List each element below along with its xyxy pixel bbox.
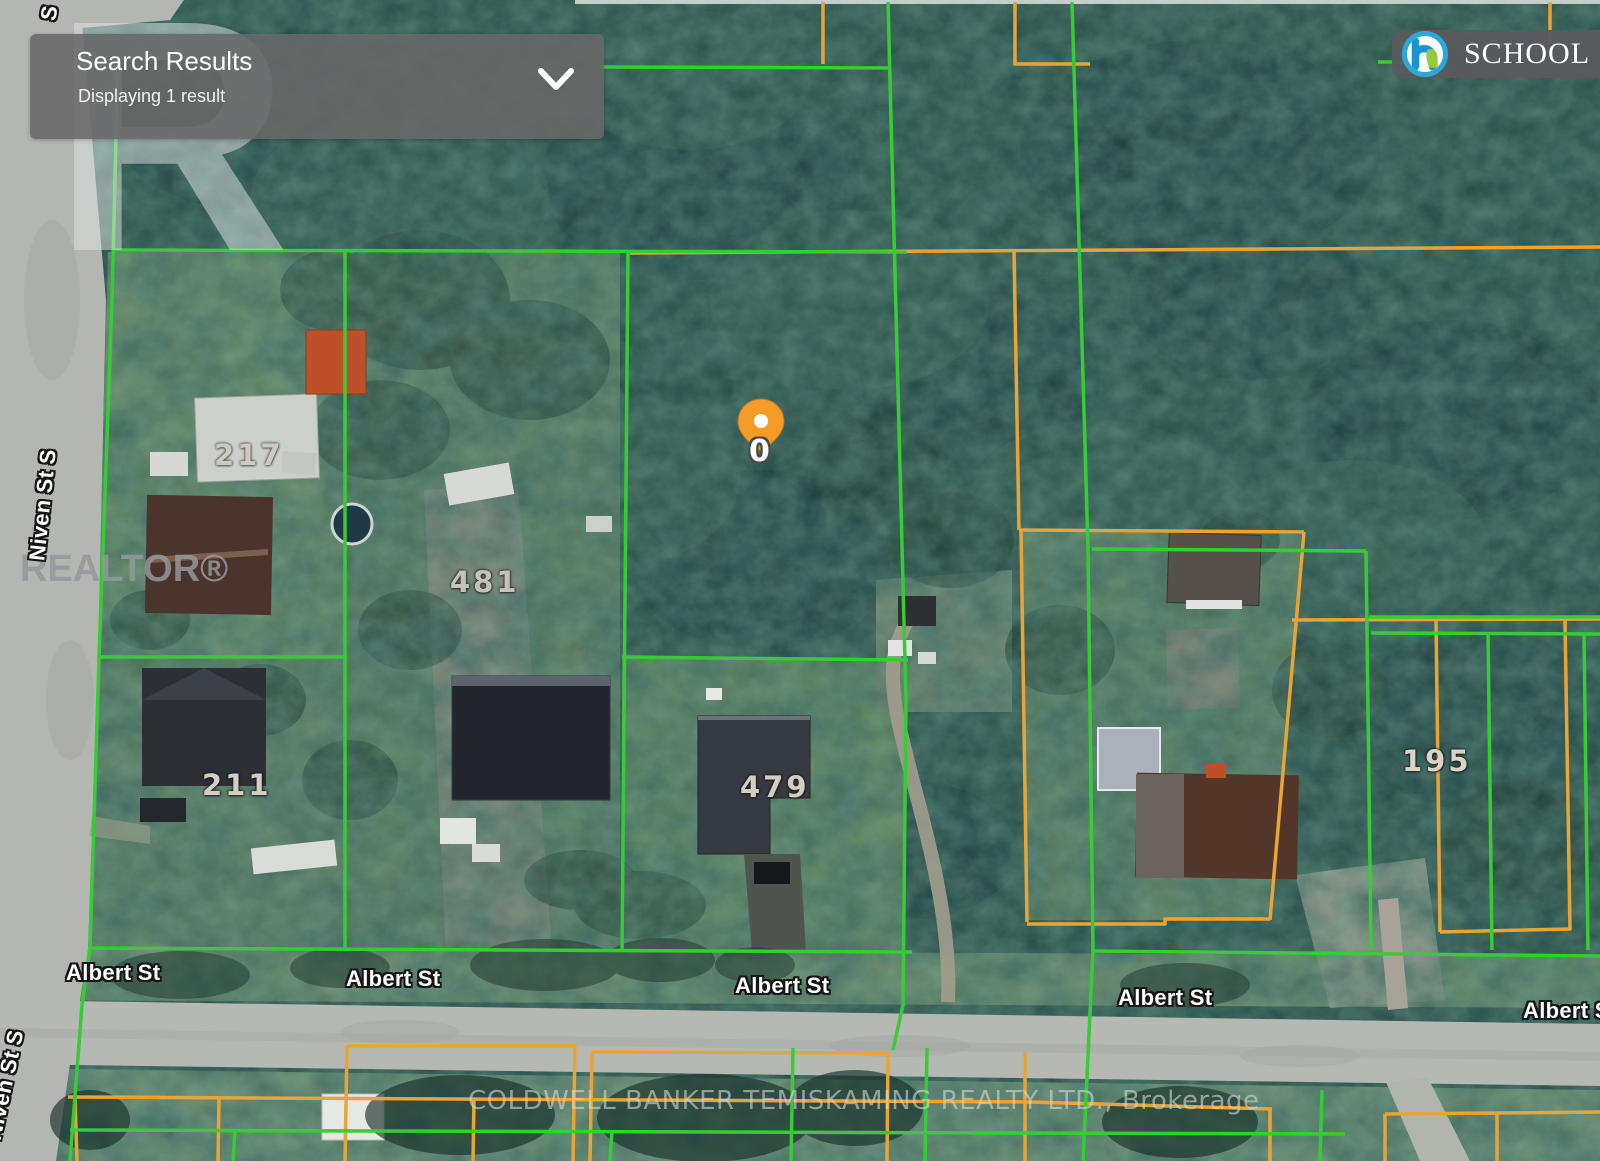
school-chip-label: SCHOOL [1464, 37, 1590, 71]
search-results-count: Displaying 1 result [78, 86, 225, 107]
pin-address-label: 0 [749, 434, 770, 469]
brokerage-watermark: COLDWELL BANKER TEMISKAMING REALTY LTD.,… [468, 1086, 1260, 1116]
street-label-albert-2: Albert St [346, 966, 440, 992]
realtor-wordmark: REALTOR® [20, 548, 228, 591]
map-pin-hole [754, 414, 768, 428]
street-label-albert-5: Albert St [1523, 998, 1600, 1024]
house-number-195: 195 [1402, 744, 1472, 778]
house-number-217: 217 [214, 438, 284, 472]
school-layer-chip[interactable]: SCHOOL [1392, 30, 1600, 78]
map-viewport[interactable]: R REALTOR® COLDWELL BANKER TEMISKAMING R… [0, 0, 1600, 1161]
house-number-211: 211 [202, 768, 272, 802]
street-label-albert-3: Albert St [735, 973, 829, 999]
street-label-albert-4: Albert St [1118, 985, 1212, 1011]
chevron-down-icon[interactable] [536, 66, 576, 94]
search-results-title: Search Results [76, 46, 252, 77]
street-label-albert-1: Albert St [66, 960, 160, 986]
house-number-479: 479 [740, 770, 810, 804]
house-number-481: 481 [450, 565, 520, 599]
school-logo-icon [1402, 31, 1448, 77]
search-results-panel[interactable]: Search Results Displaying 1 result [30, 34, 604, 139]
